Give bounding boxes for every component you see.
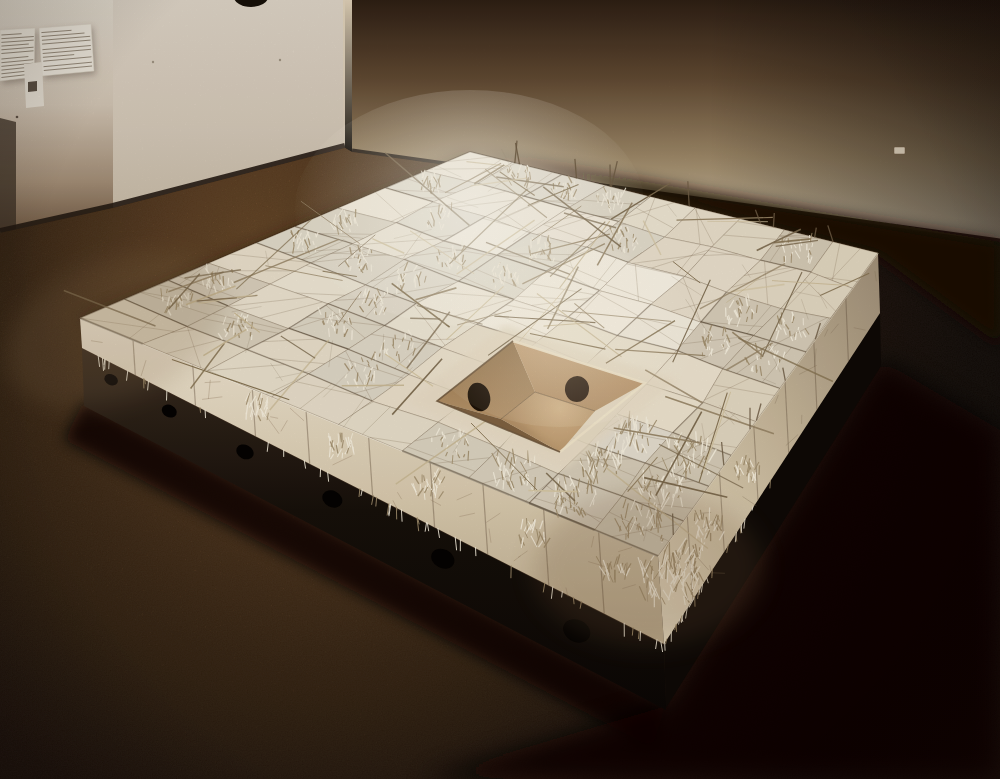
installation-photo	[0, 0, 1000, 779]
vignette	[0, 0, 1000, 779]
gallery-photo	[0, 0, 1000, 779]
